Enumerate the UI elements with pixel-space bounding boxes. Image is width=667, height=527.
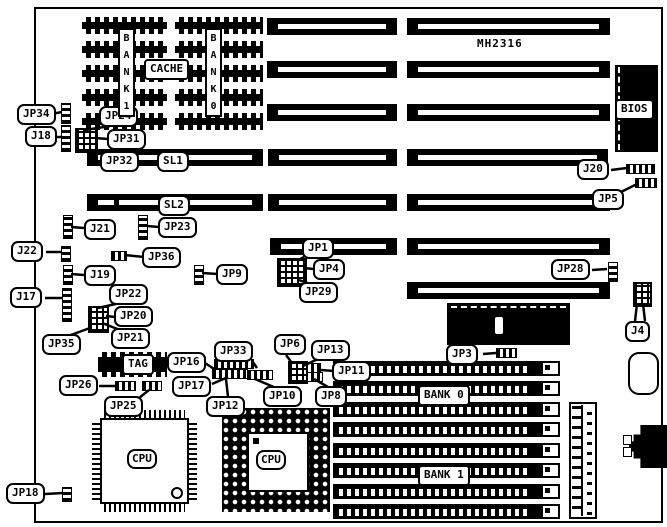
jp8-label: JP8 bbox=[315, 386, 347, 407]
jp9-jumper bbox=[194, 265, 204, 285]
jp21-label: JP21 bbox=[111, 328, 150, 349]
simm-clip bbox=[541, 504, 560, 519]
jp33-label: JP33 bbox=[214, 341, 253, 362]
slot-stripe bbox=[278, 24, 386, 29]
slot-stripe bbox=[278, 67, 386, 72]
slot-stripe bbox=[418, 155, 597, 160]
jp5-jumper bbox=[635, 178, 657, 188]
j20-label: J20 bbox=[577, 159, 609, 180]
jp13-label: JP13 bbox=[311, 340, 350, 361]
slot-stripe bbox=[278, 110, 386, 115]
qfp-pin1-dot bbox=[171, 487, 183, 499]
jp31-jumper-block bbox=[75, 128, 98, 153]
j4-label: J4 bbox=[625, 321, 650, 342]
jp31-label: JP31 bbox=[107, 129, 146, 150]
simm-clip bbox=[541, 361, 560, 376]
j22-jumper bbox=[61, 246, 71, 262]
jp20-jumper-block bbox=[88, 306, 109, 333]
jp23-label: JP23 bbox=[158, 217, 197, 238]
j21-jumper bbox=[63, 215, 73, 239]
pga-pin1-mark bbox=[253, 438, 259, 444]
slot-stripe bbox=[418, 67, 599, 72]
j17-jumper bbox=[62, 288, 72, 322]
motherboard-jumper-diagram: MH2316 BIOS CPU CPU bbox=[0, 0, 667, 527]
din-tab bbox=[623, 447, 632, 457]
jp11-label: JP11 bbox=[332, 361, 371, 382]
j20-jumper bbox=[626, 164, 655, 174]
jumper-strip-3-jumper bbox=[247, 370, 273, 380]
jp5-label: JP5 bbox=[592, 189, 624, 210]
jp25-label: JP25 bbox=[104, 396, 143, 417]
cpu-qfp-label: CPU bbox=[127, 449, 157, 469]
expansion-slot bbox=[407, 61, 610, 78]
simm-clip bbox=[541, 422, 560, 437]
din-tab bbox=[623, 435, 632, 445]
jp3-jumper bbox=[496, 348, 517, 358]
jumper-strip-2-jumper bbox=[212, 369, 248, 379]
jp1-label: JP1 bbox=[302, 238, 334, 259]
jp6-label: JP6 bbox=[274, 334, 306, 355]
cache-bank0-label: BANK0 bbox=[205, 28, 222, 117]
sl2-label: SL2 bbox=[158, 195, 190, 216]
jp17-label: JP17 bbox=[172, 376, 211, 397]
j18-label: J18 bbox=[25, 126, 57, 147]
jp29-label: JP29 bbox=[299, 282, 338, 303]
cpu-pga-label: CPU bbox=[256, 450, 286, 470]
slot-divider bbox=[114, 200, 119, 205]
simm-clip bbox=[541, 484, 560, 499]
power-connector bbox=[569, 402, 597, 519]
simm-bank1-label: BANK 1 bbox=[418, 465, 470, 486]
keyboard-controller-chip bbox=[447, 303, 570, 345]
expansion-slot bbox=[407, 282, 610, 299]
jp20-label: JP20 bbox=[114, 306, 153, 327]
jp26-jumper bbox=[115, 381, 136, 391]
bios-label: BIOS bbox=[615, 99, 654, 120]
expansion-slot bbox=[267, 104, 397, 121]
jp34-jumper bbox=[61, 103, 71, 124]
expansion-slot bbox=[267, 18, 397, 35]
jp25-jumper bbox=[142, 381, 162, 391]
expansion-slot bbox=[407, 194, 610, 211]
expansion-slot bbox=[267, 61, 397, 78]
slot-stripe bbox=[418, 200, 599, 205]
jp16-label: JP16 bbox=[167, 352, 206, 373]
slot-stripe bbox=[418, 244, 599, 249]
cache-bank1-label: BANK1 bbox=[118, 28, 135, 117]
j19-label: J19 bbox=[84, 265, 116, 286]
sl1-label: SL1 bbox=[157, 151, 189, 172]
j4-jumper-block bbox=[633, 282, 652, 307]
cache-label: CACHE bbox=[144, 59, 189, 80]
tag-label: TAG bbox=[122, 354, 154, 375]
jp26-label: JP26 bbox=[59, 375, 98, 396]
jp32-label: JP32 bbox=[100, 151, 139, 172]
jp3-label: JP3 bbox=[446, 344, 478, 365]
jp23-jumper bbox=[138, 215, 148, 240]
j22-label: J22 bbox=[11, 241, 43, 262]
simm-socket bbox=[333, 443, 560, 458]
jp9-label: JP9 bbox=[216, 264, 248, 285]
j18-jumper bbox=[61, 125, 71, 152]
j19-jumper bbox=[63, 265, 73, 285]
simm-bank0-label: BANK 0 bbox=[418, 385, 470, 406]
simm-clip bbox=[541, 443, 560, 458]
jp36-jumper bbox=[111, 251, 127, 261]
simm-socket bbox=[333, 484, 560, 499]
chip-dashed-line bbox=[451, 306, 566, 308]
jp34-label: JP34 bbox=[17, 104, 56, 125]
j17-label: J17 bbox=[10, 287, 42, 308]
expansion-slot bbox=[407, 104, 610, 121]
expansion-slot bbox=[268, 194, 397, 211]
slot-stripe bbox=[418, 24, 599, 29]
qfp-pins bbox=[104, 504, 185, 512]
jp28-label: JP28 bbox=[551, 259, 590, 280]
j21-label: J21 bbox=[84, 219, 116, 240]
jp18-jumper bbox=[62, 487, 72, 502]
jp18-label: JP18 bbox=[6, 483, 45, 504]
jp35-label: JP35 bbox=[42, 334, 81, 355]
jp6-jumper-block bbox=[288, 361, 308, 384]
jp12-label: JP12 bbox=[206, 396, 245, 417]
power-pin-column bbox=[587, 406, 592, 515]
slot-stripe bbox=[279, 155, 386, 160]
jp36-label: JP36 bbox=[142, 247, 181, 268]
expansion-slot bbox=[407, 238, 610, 255]
board-part-number: MH2316 bbox=[477, 37, 523, 50]
power-pin-column bbox=[572, 405, 583, 516]
simm-clip bbox=[541, 381, 560, 396]
slot-stripe bbox=[279, 200, 386, 205]
kbd-label bbox=[493, 315, 505, 336]
qfp-pins bbox=[92, 422, 100, 500]
simm-socket bbox=[333, 422, 560, 437]
simm-clip bbox=[541, 463, 560, 478]
jp28-jumper bbox=[608, 262, 618, 282]
expansion-slot bbox=[407, 18, 610, 35]
qfp-pins bbox=[189, 422, 197, 500]
expansion-slot bbox=[268, 149, 397, 166]
jp10-label: JP10 bbox=[263, 386, 302, 407]
simm-clip bbox=[541, 402, 560, 417]
slot-stripe bbox=[418, 288, 599, 293]
slot-stripe bbox=[418, 110, 599, 115]
jp22-label: JP22 bbox=[109, 284, 148, 305]
connector-outline bbox=[628, 352, 659, 395]
jp4-label: JP4 bbox=[313, 259, 345, 280]
simm-socket bbox=[333, 504, 560, 519]
